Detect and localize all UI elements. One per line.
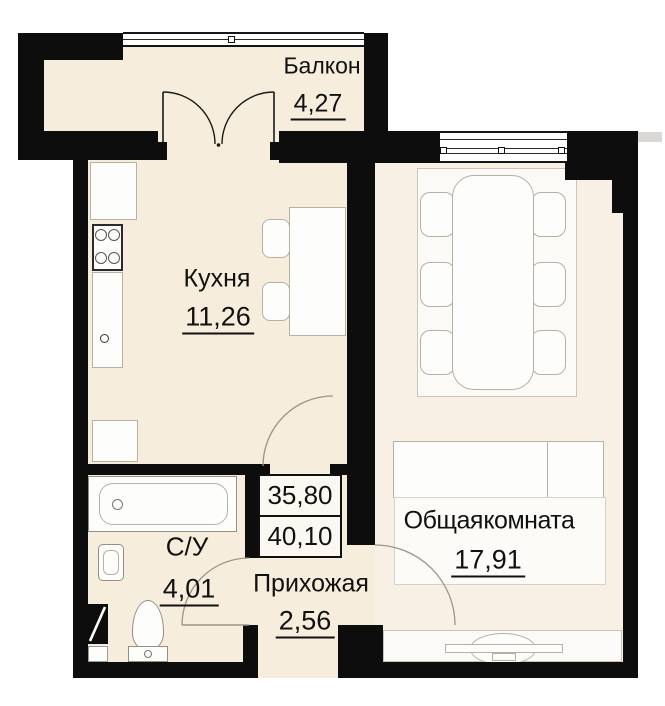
stool-icon [262, 282, 290, 321]
dining-chair-icon [531, 192, 566, 237]
wall [243, 625, 258, 662]
wall [73, 464, 270, 475]
wall [565, 131, 612, 180]
area-number: 4,01 [160, 574, 219, 607]
tv-stand-icon [492, 653, 516, 661]
basin-inner [103, 550, 119, 575]
balcony-area-value: 4,27 [291, 90, 346, 119]
shaft-icon [88, 604, 108, 644]
wall [73, 662, 258, 678]
stool-icon [262, 219, 290, 258]
sink-drain-icon [100, 334, 109, 343]
neighbor-wall-hint [638, 132, 662, 142]
wall [347, 131, 375, 545]
glazing-mullion [228, 36, 235, 43]
bathtub-drain-icon [112, 499, 123, 510]
balcony-glazing [123, 32, 364, 47]
window-mullion [440, 147, 447, 154]
toilet-button-icon [144, 650, 152, 658]
balcony-door-opening [158, 131, 279, 160]
kitchen-label: Кухня [184, 265, 251, 294]
kitchen-area-value: 11,26 [182, 302, 254, 333]
window-mullion [498, 147, 505, 154]
kitchen-cabinet-icon [92, 420, 138, 462]
glazing-line [123, 39, 364, 40]
wall [73, 131, 88, 663]
dining-chair-icon [420, 330, 455, 375]
burner-icon [95, 229, 107, 241]
bathroom-area-value: 4,01 [160, 574, 219, 605]
wall [623, 131, 638, 678]
hallway-area-value: 2,56 [276, 606, 335, 637]
dining-chair-icon [420, 192, 455, 237]
tv-bar-icon [445, 644, 563, 653]
dining-chair-icon [531, 330, 566, 375]
balcony-label: Балкон [283, 53, 360, 80]
area-stamp: 35,80 40,10 [258, 474, 342, 558]
area-number: 11,26 [182, 302, 254, 335]
kitchen-bar-counter-icon [289, 207, 346, 336]
dining-chair-icon [420, 262, 455, 307]
door-jamb [158, 142, 167, 160]
wall [18, 131, 158, 160]
wall [338, 625, 383, 678]
shaft-box [88, 646, 108, 662]
dining-chair-icon [531, 262, 566, 307]
burner-icon [108, 252, 120, 264]
hallway-label: Прихожая [253, 570, 369, 599]
wall [388, 131, 440, 163]
wall [378, 662, 638, 678]
area-number: 4,27 [291, 90, 346, 121]
wall [245, 464, 258, 558]
living-room-window [440, 131, 567, 163]
area-stamp-bottom: 40,10 [260, 517, 340, 556]
kitchen-counter-icon [90, 162, 137, 220]
wall [18, 33, 123, 60]
window-line [440, 139, 567, 140]
burner-icon [108, 229, 120, 241]
window-mullion [558, 147, 565, 154]
area-number: 2,56 [276, 606, 335, 639]
floor-plan: 35,80 40,10 Балкон 4,27 Кухня 11,26 С/У … [0, 0, 665, 706]
living-room-label: Общая комната [404, 507, 575, 536]
kitchen-sink-unit-icon [92, 272, 123, 368]
bathroom-label: С/У [166, 532, 209, 563]
area-stamp-top: 35,80 [260, 476, 340, 517]
area-number: 17,91 [451, 545, 525, 578]
living-room-area-value: 17,91 [451, 545, 525, 576]
dining-table-icon [452, 175, 534, 390]
door-jamb [270, 142, 279, 160]
burner-icon [95, 252, 107, 264]
